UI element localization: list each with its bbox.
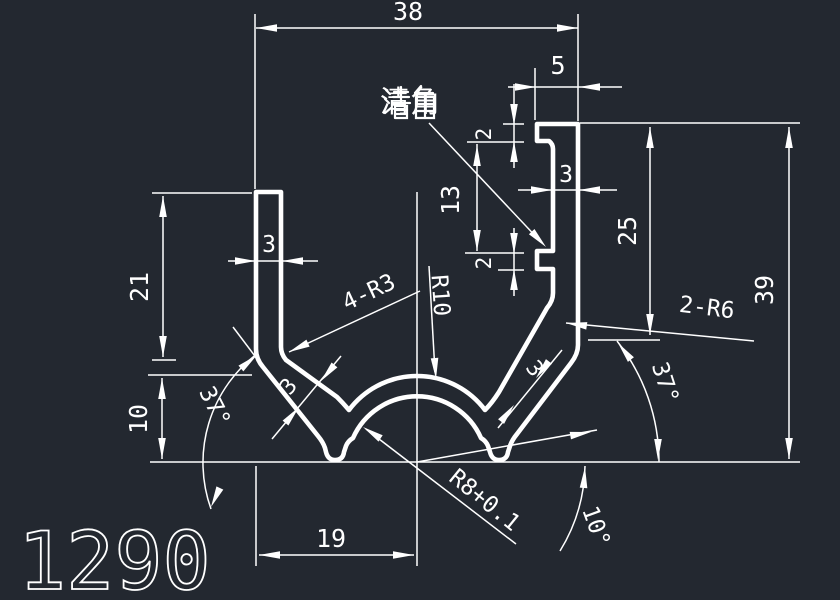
dim-text-left-wall-thickness: 3 — [262, 232, 276, 258]
dim-left-slant-thickness: 3 — [272, 356, 341, 439]
arrowhead — [510, 233, 518, 254]
dim-left-wall-height: 21 — [125, 193, 252, 360]
arrowhead — [473, 230, 481, 251]
arrowhead — [510, 141, 518, 162]
dim-text-lip-width: 5 — [550, 51, 565, 80]
arrowhead — [515, 83, 536, 91]
arrowhead — [473, 145, 481, 166]
arrowhead — [159, 196, 167, 217]
arrowhead — [570, 428, 592, 439]
arrowhead — [531, 186, 552, 194]
arrowhead — [654, 439, 662, 460]
dim-text-notch-height: 2 — [472, 257, 496, 270]
dim-text-right-slant-thickness: 3 — [520, 356, 548, 382]
dim-lip-width: 5 — [508, 51, 622, 120]
angle-arc — [203, 353, 258, 509]
dim-text-left-wall-height: 21 — [125, 272, 154, 302]
leader-corner-note: 清角 — [380, 85, 549, 250]
dim-base-angle: 10° — [417, 428, 615, 551]
dim-right-wall-thickness: 3 — [518, 162, 617, 194]
dim-text-base-angle: 10° — [576, 503, 615, 551]
arrowhead — [579, 186, 600, 194]
arrowhead — [615, 341, 634, 362]
corner-note-label: 清角 — [380, 85, 440, 120]
angle-arc — [560, 466, 585, 551]
part-number: 1290 — [18, 515, 211, 600]
dim-overall-height: 39 — [750, 127, 793, 459]
dim-right-wall-angle: 37° — [615, 341, 683, 462]
arrowhead — [256, 24, 277, 32]
dim-text-overall-height: 39 — [750, 275, 779, 305]
leader-bend-radii: 2-R6 — [565, 292, 754, 341]
cad-drawing: 38 5 2 13 2 3 — [0, 0, 840, 600]
dim-text-left-wall-angle: 37° — [193, 382, 235, 431]
arrowhead — [259, 551, 280, 559]
dim-left-wall-thickness: 3 — [228, 232, 318, 265]
arrowhead — [361, 424, 383, 442]
cad-drawing-canvas: 38 5 2 13 2 3 — [0, 0, 840, 600]
leader-line — [566, 323, 754, 341]
dim-text-overall-width: 38 — [393, 0, 423, 26]
label-inner-fillets: 4-R3 — [338, 269, 399, 316]
dim-right-wall-height: 25 — [588, 127, 660, 340]
arrowhead — [158, 438, 166, 459]
arrowhead — [529, 229, 549, 250]
arrowhead — [785, 127, 793, 148]
dim-text-right-wall-height: 25 — [613, 216, 642, 246]
label-bend-radii: 2-R6 — [678, 292, 736, 325]
label-hump-outer-radius: R10 — [426, 274, 455, 317]
dim-text-right-wall-angle: 37° — [646, 359, 684, 407]
angle-arc — [617, 341, 659, 462]
dim-text-lip-thickness: 2 — [472, 128, 496, 141]
dim-notch-spacing: 13 — [436, 142, 524, 253]
arrowhead — [282, 257, 303, 265]
dim-text-right-wall-thickness: 3 — [559, 162, 573, 188]
leader-hump-inner-radius: R8+0.1 — [361, 424, 525, 544]
dim-text-base-half-width: 19 — [316, 524, 346, 553]
dim-text-notch-spacing: 13 — [436, 185, 465, 215]
dim-text-left-slant-thickness: 3 — [275, 374, 303, 400]
leader-inner-fillets: 4-R3 — [287, 269, 420, 355]
dim-base-half-width: 19 — [256, 466, 414, 566]
arrowhead — [580, 467, 589, 488]
arrowhead — [510, 269, 518, 290]
leader-hump-outer-radius: R10 — [426, 266, 455, 379]
arrowhead — [393, 551, 414, 559]
arrowhead — [785, 438, 793, 459]
arrowhead — [235, 257, 256, 265]
arrowhead — [287, 340, 309, 356]
leader-line — [366, 429, 516, 544]
dim-left-wall-angle: 37° — [193, 327, 276, 509]
arrowhead — [557, 24, 578, 32]
arrowhead — [158, 378, 166, 399]
arrowhead — [510, 104, 518, 125]
dim-text-left-lower-height: 10 — [124, 404, 153, 434]
arrowhead — [579, 83, 600, 91]
arrowhead — [159, 336, 167, 357]
dim-notch-height: 2 — [472, 228, 524, 296]
dim-lip-thickness: 2 — [472, 84, 524, 168]
arrowhead — [646, 127, 654, 148]
arrowhead — [498, 403, 517, 424]
label-hump-inner-radius: R8+0.1 — [444, 464, 525, 536]
